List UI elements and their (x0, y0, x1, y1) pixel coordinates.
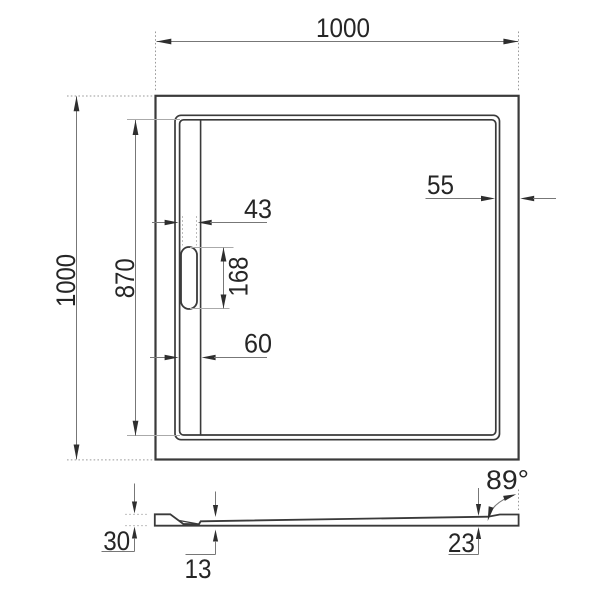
svg-text:870: 870 (110, 258, 140, 298)
svg-text:89°: 89° (486, 465, 529, 495)
svg-text:43: 43 (244, 194, 272, 224)
svg-text:1000: 1000 (316, 13, 370, 43)
svg-text:13: 13 (185, 554, 212, 584)
svg-text:55: 55 (427, 170, 454, 200)
svg-text:23: 23 (448, 528, 475, 558)
svg-text:60: 60 (244, 329, 272, 359)
svg-text:30: 30 (103, 526, 130, 556)
svg-text:168: 168 (224, 257, 254, 297)
svg-text:1000: 1000 (51, 254, 81, 307)
